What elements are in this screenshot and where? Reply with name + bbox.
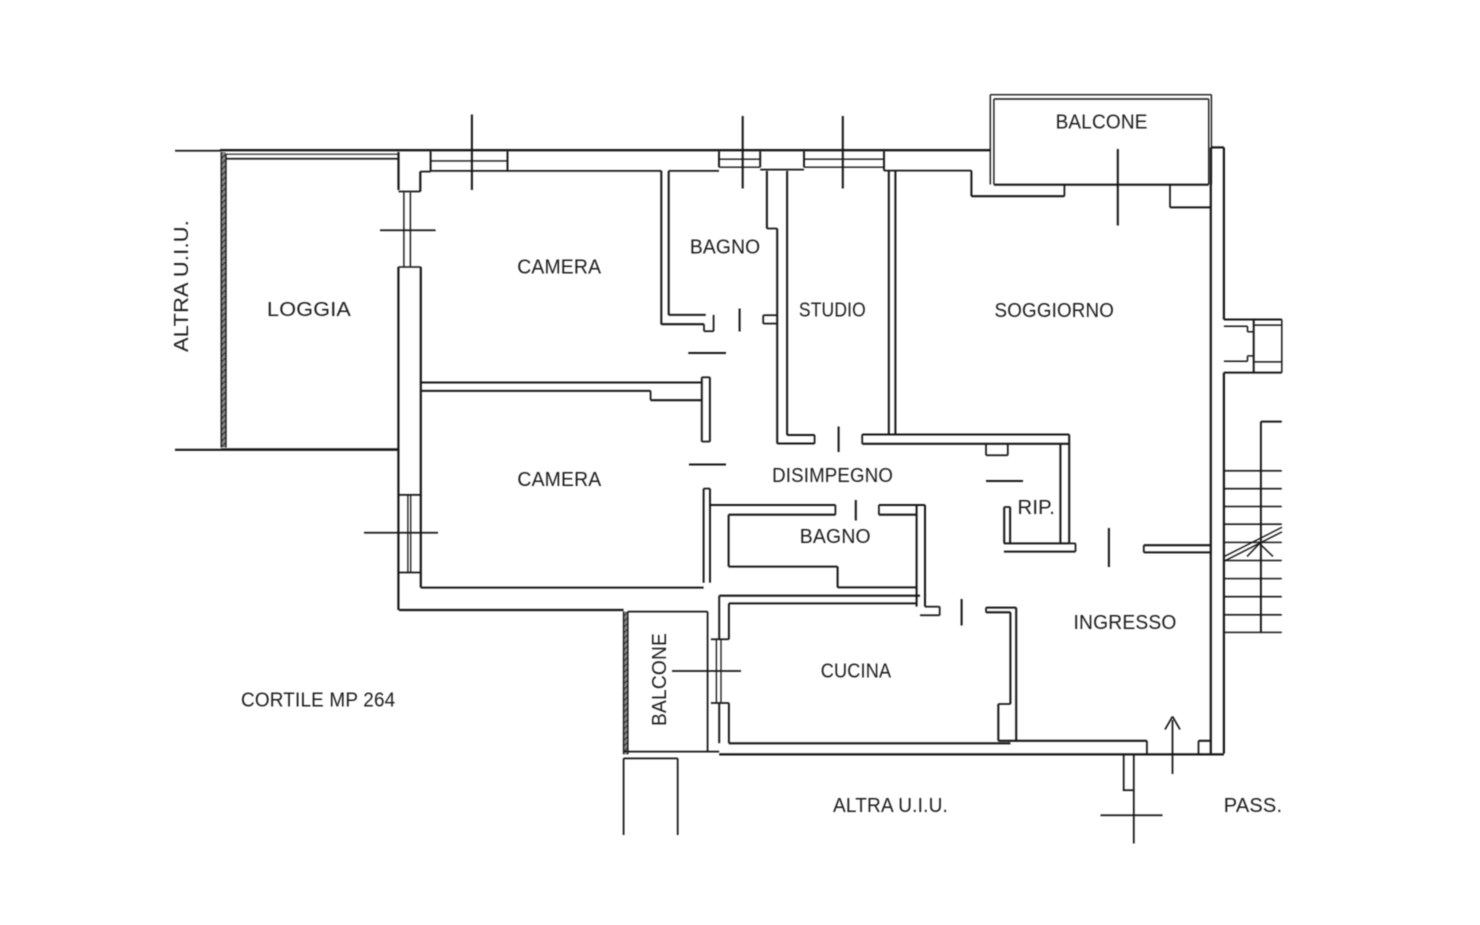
svg-text:BAGNO: BAGNO xyxy=(800,525,871,548)
svg-text:SOGGIORNO: SOGGIORNO xyxy=(995,299,1115,322)
svg-text:RIP.: RIP. xyxy=(1018,496,1056,519)
svg-text:BALCONE: BALCONE xyxy=(648,633,671,726)
svg-text:CUCINA: CUCINA xyxy=(821,660,892,683)
svg-text:LOGGIA: LOGGIA xyxy=(267,298,351,321)
svg-text:CAMERA: CAMERA xyxy=(517,468,601,491)
svg-text:CORTILE MP 264: CORTILE MP 264 xyxy=(241,689,395,712)
svg-text:DISIMPEGNO: DISIMPEGNO xyxy=(772,464,893,487)
svg-text:ALTRA U.I.U.: ALTRA U.I.U. xyxy=(833,794,948,817)
svg-text:PASS.: PASS. xyxy=(1224,794,1282,817)
svg-text:ALTRA U.I.U.: ALTRA U.I.U. xyxy=(170,220,193,352)
svg-text:CAMERA: CAMERA xyxy=(517,256,601,279)
svg-text:BALCONE: BALCONE xyxy=(1056,111,1148,134)
svg-text:INGRESSO: INGRESSO xyxy=(1074,611,1177,634)
svg-text:BAGNO: BAGNO xyxy=(690,236,761,259)
svg-text:STUDIO: STUDIO xyxy=(799,299,866,322)
